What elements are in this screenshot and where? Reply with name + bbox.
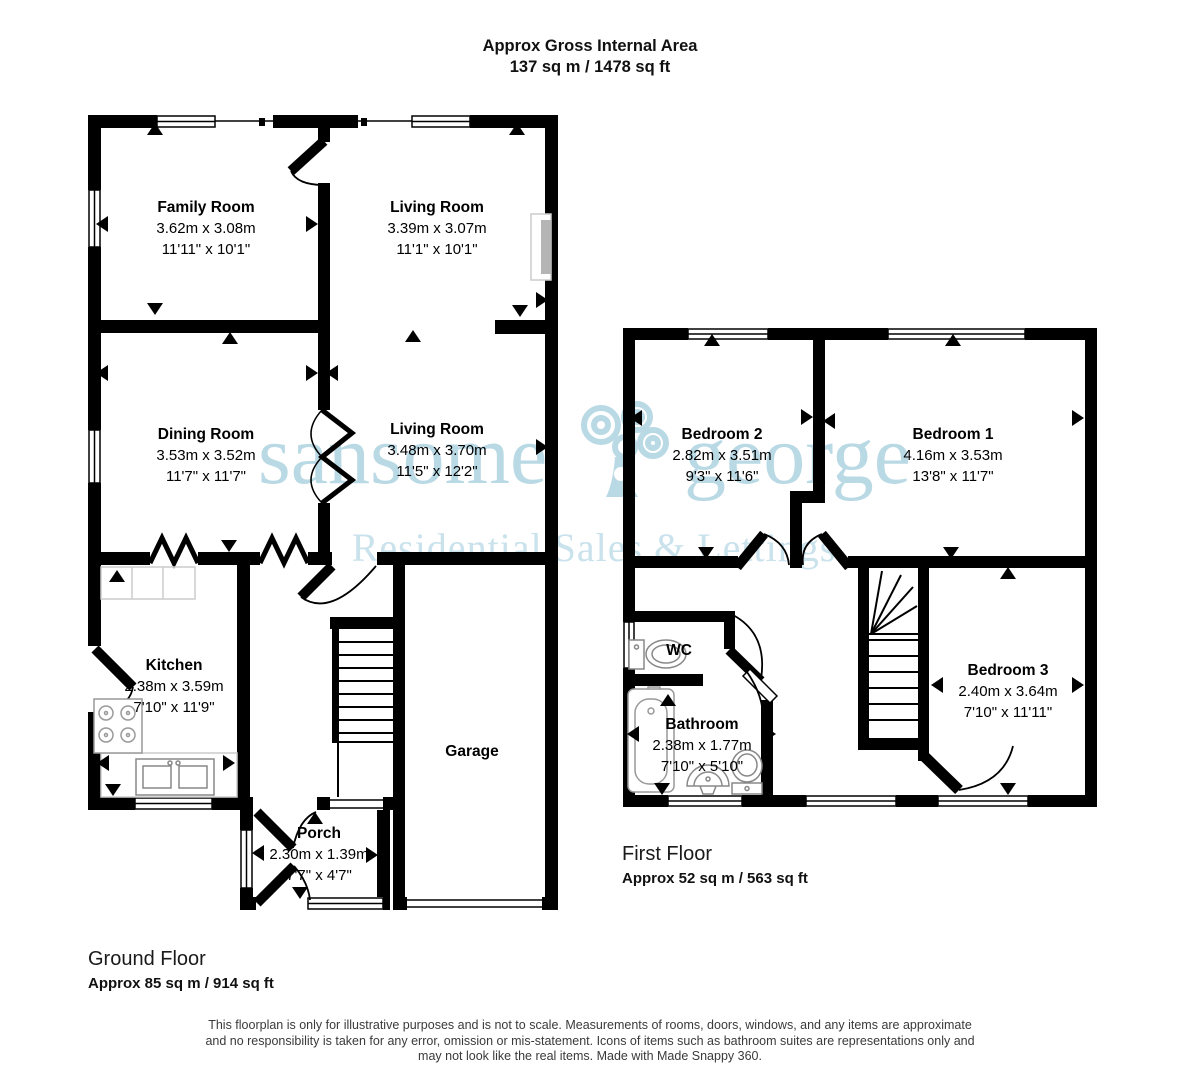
- room-dims-imperial: 11'1" x 10'1": [387, 239, 486, 260]
- room-name: WC: [666, 640, 692, 661]
- room-label-bathroom: Bathroom 2.38m x 1.77m 7'10" x 5'10": [652, 714, 751, 777]
- disclaimer: This floorplan is only for illustrative …: [0, 1018, 1180, 1065]
- room-label-porch: Porch 2.30m x 1.39m 7'7" x 4'7": [269, 823, 368, 886]
- floorplan-svg: [0, 0, 1180, 1080]
- room-dims-imperial: 9'3" x 11'6": [672, 466, 771, 487]
- ground-floor-stairs-icon: [332, 642, 393, 797]
- room-dims-metric: 2.40m x 3.64m: [958, 681, 1057, 702]
- room-name: Porch: [269, 823, 368, 844]
- room-name: Bedroom 1: [903, 424, 1002, 445]
- room-dims-metric: 2.38m x 1.77m: [652, 735, 751, 756]
- first-floor-stairs-icon: [869, 571, 918, 720]
- room-dims-metric: 4.16m x 3.53m: [903, 445, 1002, 466]
- room-name: Living Room: [387, 197, 486, 218]
- room-dims-imperial: 7'10" x 11'9": [124, 697, 223, 718]
- title-line-1: Approx Gross Internal Area: [0, 36, 1180, 57]
- room-label-family-room: Family Room 3.62m x 3.08m 11'11" x 10'1": [156, 197, 255, 260]
- room-dims-metric: 3.48m x 3.70m: [387, 440, 486, 461]
- title-line-2: 137 sq m / 1478 sq ft: [0, 57, 1180, 78]
- room-name: Bedroom 3: [958, 660, 1057, 681]
- room-name: Dining Room: [156, 424, 255, 445]
- disclaimer-line-3: may not look like the real items. Made w…: [0, 1049, 1180, 1065]
- disclaimer-line-2: and no responsibility is taken for any e…: [0, 1034, 1180, 1050]
- room-label-living-room-front: Living Room 3.39m x 3.07m 11'1" x 10'1": [387, 197, 486, 260]
- kitchen-sink-icon: [136, 759, 214, 795]
- room-dims-imperial: 11'7" x 11'7": [156, 466, 255, 487]
- first-floor-label: First Floor: [622, 843, 712, 866]
- room-dims-imperial: 13'8" x 11'7": [903, 466, 1002, 487]
- room-label-bedroom-2: Bedroom 2 2.82m x 3.51m 9'3" x 11'6": [672, 424, 771, 487]
- room-label-bedroom-1: Bedroom 1 4.16m x 3.53m 13'8" x 11'7": [903, 424, 1002, 487]
- room-label-living-room-rear: Living Room 3.48m x 3.70m 11'5" x 12'2": [387, 419, 486, 482]
- room-label-wc: WC: [666, 640, 692, 661]
- room-dims-metric: 3.53m x 3.52m: [156, 445, 255, 466]
- room-dims-metric: 3.62m x 3.08m: [156, 218, 255, 239]
- ground-floor-label: Ground Floor: [88, 948, 206, 971]
- room-name: Family Room: [156, 197, 255, 218]
- room-dims-imperial: 7'10" x 11'11": [958, 702, 1057, 723]
- room-dims-metric: 2.82m x 3.51m: [672, 445, 771, 466]
- room-dims-imperial: 11'11" x 10'1": [156, 239, 255, 260]
- room-dims-metric: 3.39m x 3.07m: [387, 218, 486, 239]
- disclaimer-line-1: This floorplan is only for illustrative …: [0, 1018, 1180, 1034]
- room-name: Bathroom: [652, 714, 751, 735]
- room-label-bedroom-3: Bedroom 3 2.40m x 3.64m 7'10" x 11'11": [958, 660, 1057, 723]
- fireplace-icon: [531, 214, 551, 280]
- first-floor-area: Approx 52 sq m / 563 sq ft: [622, 870, 808, 887]
- room-dims-imperial: 7'7" x 4'7": [269, 865, 368, 886]
- room-name: Kitchen: [124, 655, 223, 676]
- room-label-kitchen: Kitchen 2.38m x 3.59m 7'10" x 11'9": [124, 655, 223, 718]
- ground-floor-area: Approx 85 sq m / 914 sq ft: [88, 975, 274, 992]
- room-dims-imperial: 11'5" x 12'2": [387, 461, 486, 482]
- room-dims-metric: 2.38m x 3.59m: [124, 676, 223, 697]
- room-name: Living Room: [387, 419, 486, 440]
- room-name: Garage: [445, 741, 498, 762]
- room-name: Bedroom 2: [672, 424, 771, 445]
- room-dims-imperial: 7'10" x 5'10": [652, 756, 751, 777]
- room-label-dining-room: Dining Room 3.53m x 3.52m 11'7" x 11'7": [156, 424, 255, 487]
- room-label-garage: Garage: [445, 741, 498, 762]
- room-dims-metric: 2.30m x 1.39m: [269, 844, 368, 865]
- title-block: Approx Gross Internal Area 137 sq m / 14…: [0, 36, 1180, 78]
- floorplan-page: Approx Gross Internal Area 137 sq m / 14…: [0, 0, 1180, 1080]
